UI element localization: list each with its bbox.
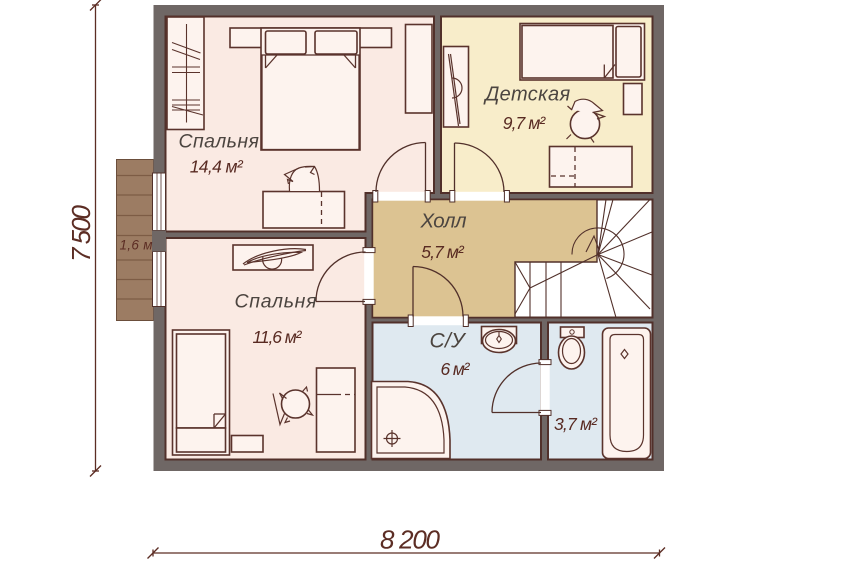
svg-text:7 500: 7 500: [66, 204, 96, 262]
svg-text:Холл: Холл: [420, 210, 467, 233]
svg-text:14,4 м²: 14,4 м²: [190, 157, 244, 177]
svg-text:6 м²: 6 м²: [441, 359, 471, 379]
svg-text:Спальня: Спальня: [235, 290, 318, 312]
svg-text:5,7 м²: 5,7 м²: [421, 242, 465, 262]
svg-text:3,7 м²: 3,7 м²: [554, 414, 598, 434]
svg-text:Детская: Детская: [483, 83, 570, 105]
svg-text:1,6 м: 1,6 м: [120, 238, 153, 253]
svg-text:9,7 м²: 9,7 м²: [503, 113, 547, 133]
svg-text:8 200: 8 200: [380, 525, 441, 555]
svg-text:Спальня: Спальня: [178, 131, 259, 153]
svg-text:С/У: С/У: [430, 330, 468, 353]
svg-text:11,6 м²: 11,6 м²: [253, 327, 303, 347]
